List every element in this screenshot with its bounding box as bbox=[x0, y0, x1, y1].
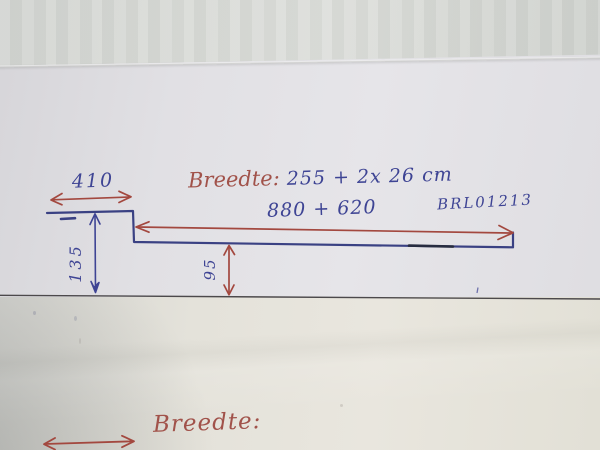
dimension-label-410: 410 bbox=[64, 169, 123, 193]
sketch-ink-layer bbox=[0, 0, 600, 450]
tick-mark bbox=[61, 218, 75, 219]
footer-heading: Breedte: bbox=[153, 408, 262, 438]
heading-label: Breedte: bbox=[188, 166, 280, 192]
arrow-bottom bbox=[44, 436, 134, 450]
dimension-label-880-620: 880 + 620 bbox=[267, 196, 377, 222]
paper-photo: 410 Breedte:255 + 2x 26 cm 880 + 620 BRL… bbox=[0, 0, 600, 450]
arrow-880-620 bbox=[136, 222, 513, 240]
stray-ink-mark bbox=[477, 288, 478, 294]
arrow-410 bbox=[51, 191, 131, 205]
arrow-135 bbox=[90, 214, 100, 293]
arrow-95 bbox=[224, 246, 235, 295]
printed-rule bbox=[0, 295, 600, 299]
dimension-label-95: 95 bbox=[201, 247, 221, 291]
profile-overdraw bbox=[409, 246, 453, 247]
dimension-label-135: 135 bbox=[66, 232, 88, 294]
heading-value: 255 + 2x 26 cm bbox=[286, 164, 453, 190]
